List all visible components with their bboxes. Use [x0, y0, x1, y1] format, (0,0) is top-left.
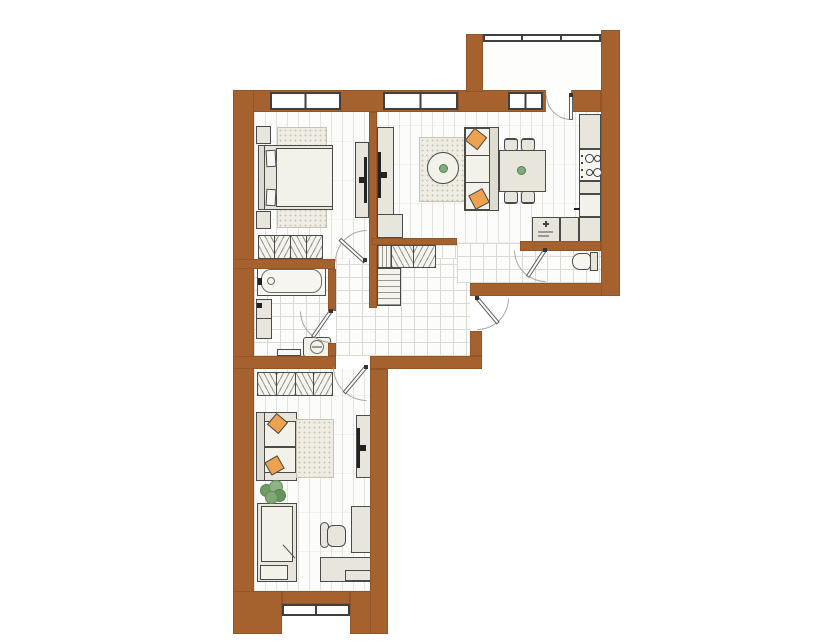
- living-room-window: [383, 92, 458, 110]
- bathtub-faucet-icon: [258, 278, 262, 285]
- kids-tv-stand: [360, 445, 366, 451]
- vanity-faucet-icon: [257, 303, 262, 308]
- dining-chair: [504, 191, 518, 204]
- wall-entry-stub: [470, 331, 482, 356]
- bedroom-wardrobe: [258, 235, 323, 259]
- faucet-icon: [543, 223, 549, 225]
- kitchen-counter: [560, 217, 579, 242]
- bed-pillow: [266, 189, 277, 207]
- desk-inner: [345, 570, 373, 581]
- dining-chair: [521, 191, 535, 204]
- balcony-glazing: [483, 34, 601, 42]
- washing-machine-label: [312, 346, 322, 348]
- kids-rug: [296, 419, 334, 478]
- living-cabinet: [377, 214, 403, 238]
- sofa-back: [489, 127, 499, 211]
- bedroom-window: [270, 92, 341, 110]
- hall-closet: [377, 245, 436, 268]
- wall-living-hall: [372, 238, 457, 245]
- wall-partition-bedroom-living: [369, 112, 377, 308]
- wall-entry-band: [470, 283, 620, 296]
- wall-kids-top: [233, 356, 336, 369]
- wall-bottom-window-head: [282, 591, 350, 604]
- kitchen-counter-corner: [579, 217, 601, 242]
- kitchen-tall-cabinet: [579, 114, 601, 149]
- wall-bathroom-right-lower: [328, 343, 336, 356]
- stove-knobs: [581, 153, 583, 178]
- living-tv-stand: [381, 172, 387, 178]
- balcony-door-hinge: [569, 93, 573, 97]
- kids-room-window: [282, 604, 350, 616]
- fridge: [579, 194, 601, 217]
- bed-pillow: [266, 150, 277, 168]
- bedroom-door-hinge: [363, 258, 367, 262]
- sink-label: [538, 231, 553, 233]
- balcony-floor: [483, 41, 601, 92]
- bathroom-door-hinge: [329, 309, 333, 313]
- sink-label: [538, 235, 549, 237]
- wc-door-hinge: [543, 248, 547, 252]
- dining-table-decor: [517, 166, 526, 175]
- plant-icon: [260, 480, 288, 504]
- wall-balcony-left: [466, 34, 483, 92]
- nightstand: [256, 126, 271, 144]
- bed-headboard: [258, 145, 265, 210]
- bedroom-tv-stand: [359, 177, 365, 183]
- kids-room-door-hinge: [364, 365, 368, 369]
- kitchen-base-cabinet: [579, 181, 601, 194]
- wall-bathroom-right-upper: [328, 269, 336, 311]
- stove: [579, 149, 601, 181]
- entrance-door-hinge: [475, 296, 479, 300]
- kitchen-window: [508, 92, 543, 110]
- single-bed-blanket: [261, 506, 293, 562]
- nightstand: [256, 211, 271, 229]
- kids-wardrobe: [257, 372, 333, 396]
- wall-bottom-left: [233, 591, 282, 634]
- bathtub-drain: [267, 277, 275, 285]
- bed-blanket: [276, 148, 333, 207]
- toilet-tank: [590, 252, 598, 271]
- wall-right-outer: [601, 30, 620, 296]
- wall-kids-right: [370, 369, 388, 634]
- floor-plan: [0, 0, 813, 644]
- toilet-bowl: [572, 253, 591, 270]
- balcony-door-leaf: [569, 95, 573, 120]
- office-chair-seat: [327, 525, 346, 547]
- hall-shelf-stack: [377, 268, 401, 306]
- coffee-table-decor: [439, 164, 448, 173]
- single-bed-foot: [260, 565, 288, 580]
- wall-hall-bottom: [370, 356, 482, 369]
- fridge-handle: [574, 208, 580, 210]
- hallway-floor: [336, 259, 470, 356]
- sofa-cushion: [465, 155, 490, 183]
- bath-mat: [277, 349, 301, 356]
- wall-bedroom-bathroom: [233, 259, 335, 269]
